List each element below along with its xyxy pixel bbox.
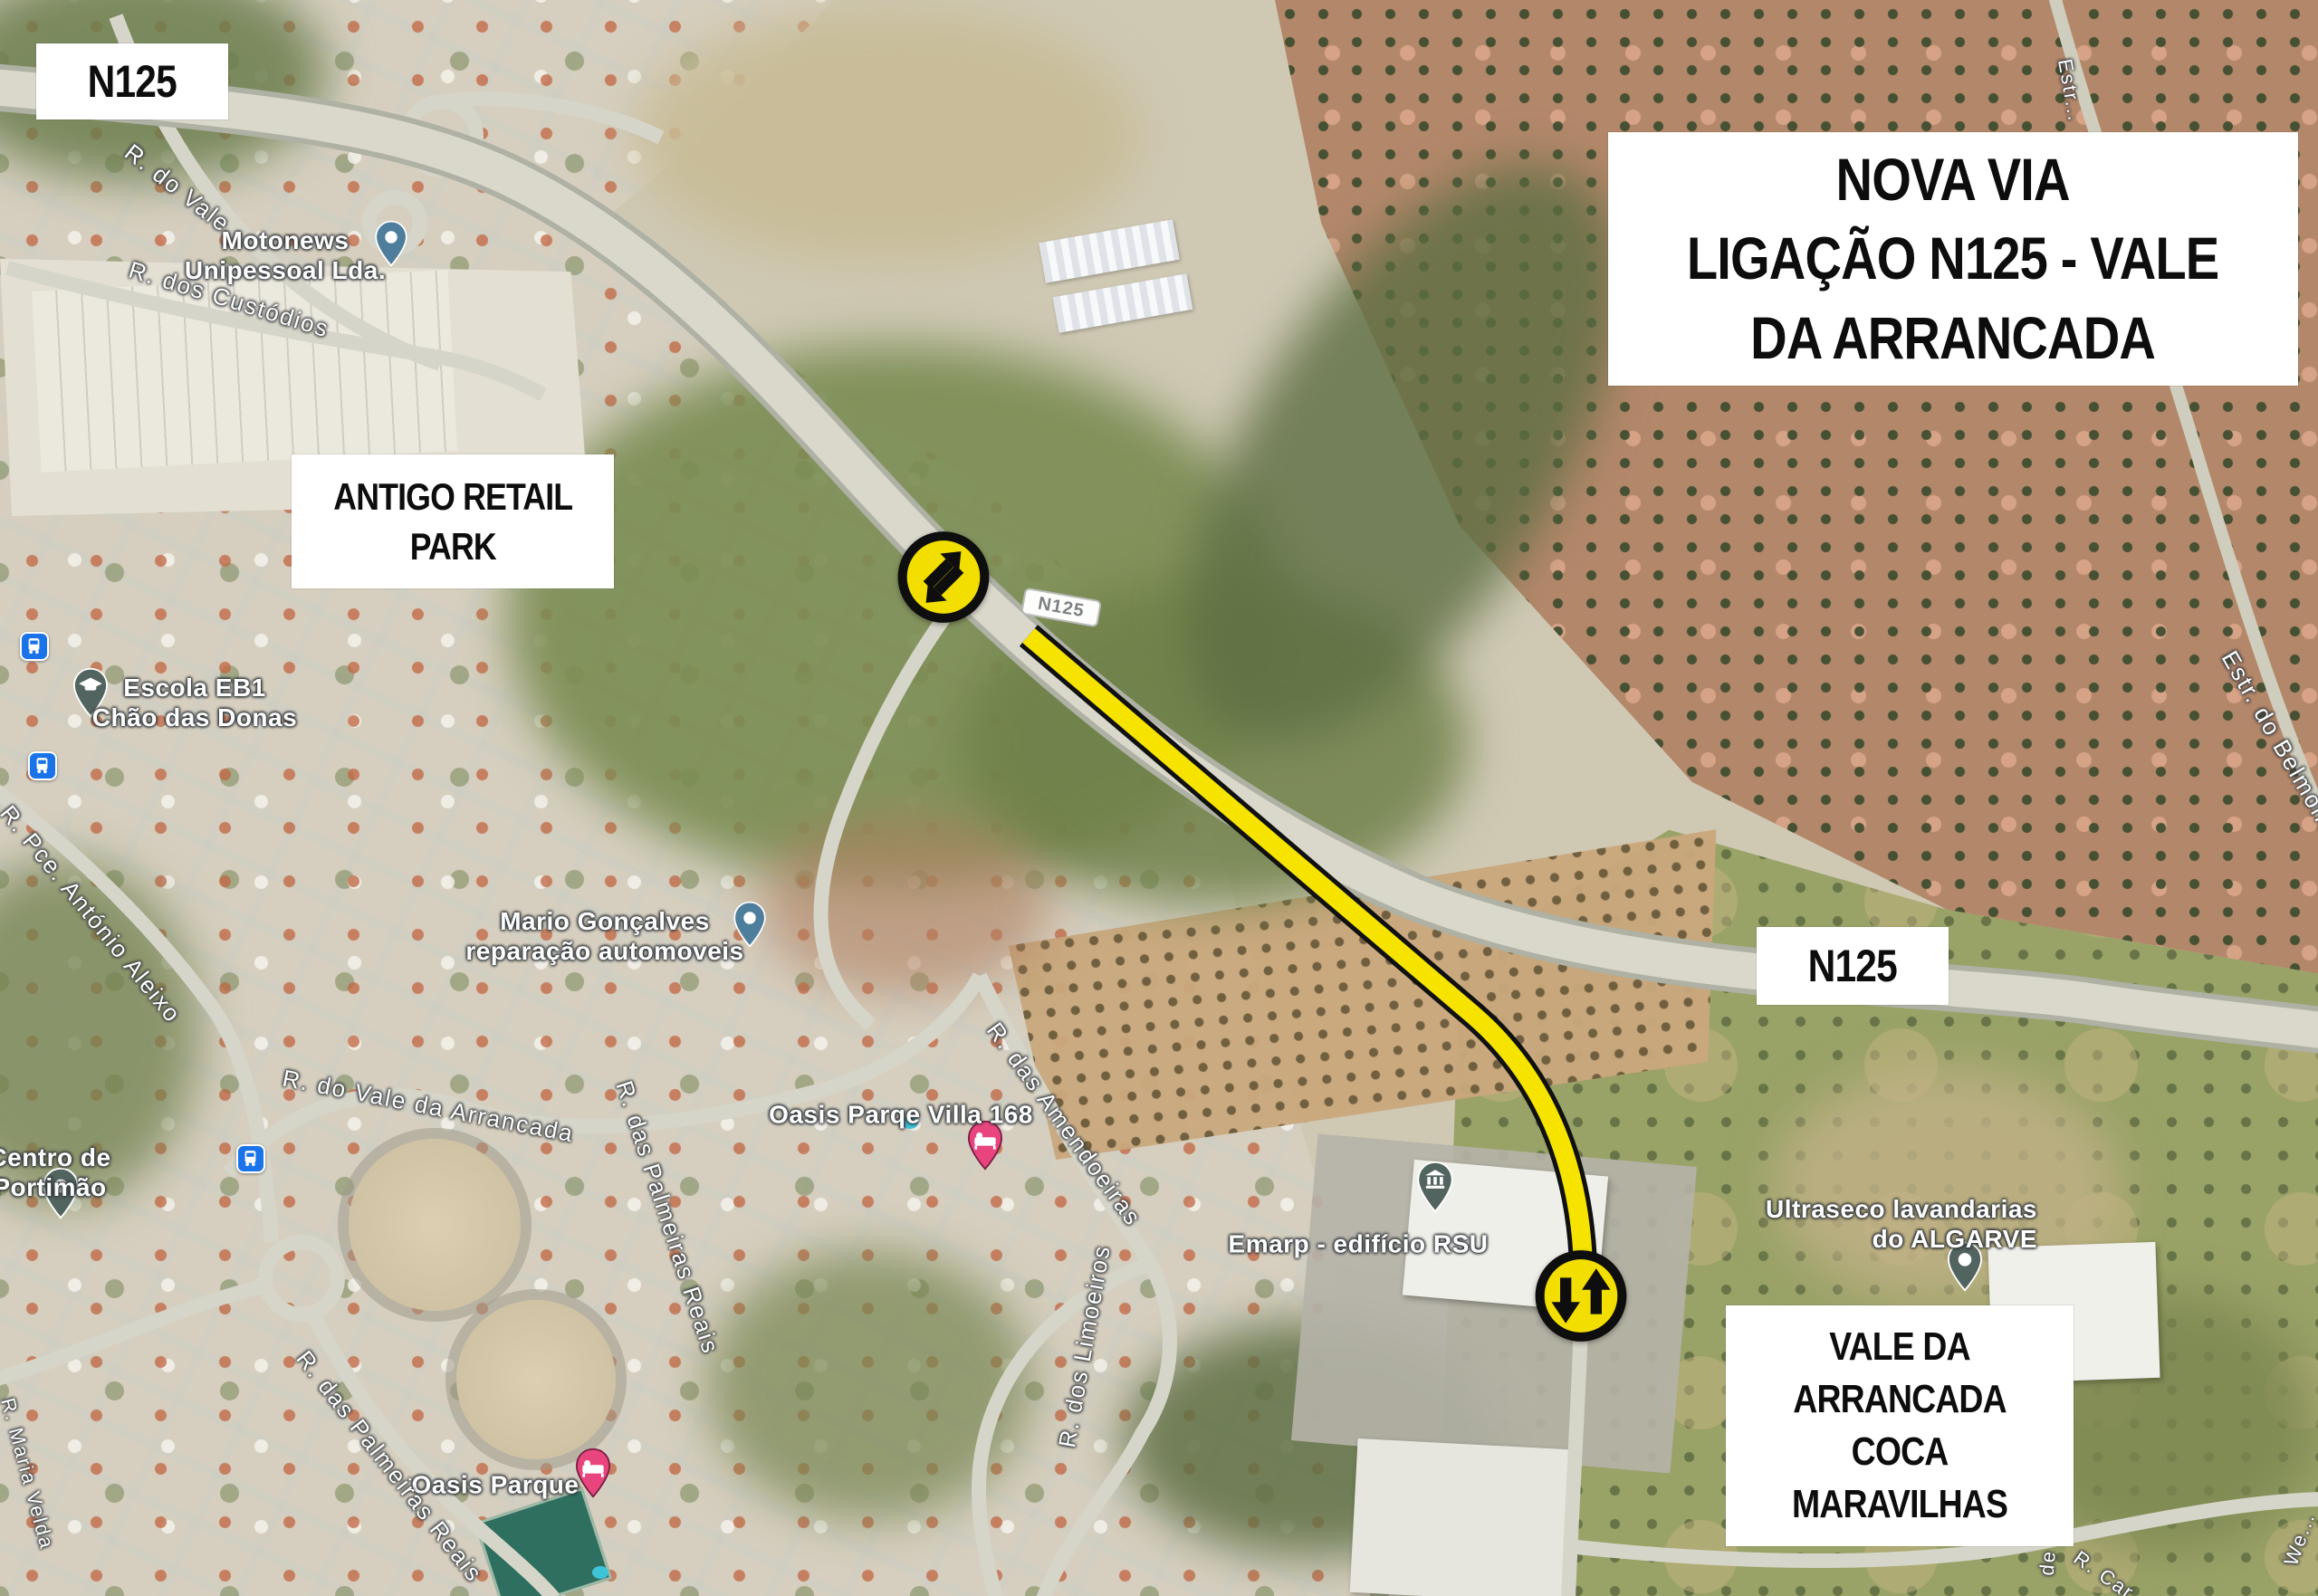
two-way-traffic-vertical-glyph xyxy=(1530,1246,1632,1347)
label-escola: Escola EB1 Chão das Donas xyxy=(92,673,297,732)
box-text: N125 xyxy=(88,52,177,111)
two-way-traffic-diagonal-glyph xyxy=(893,527,994,628)
label-text: Centro de Portimão xyxy=(0,1143,111,1201)
label-villa168: Oasis Parqe Villa 168 xyxy=(769,1099,1033,1129)
bus-stop-icon xyxy=(28,751,57,780)
lodging-pin-icon xyxy=(573,1448,613,1498)
bus-glyph xyxy=(22,634,46,658)
title-box: NOVA VIA LIGAÇÃO N125 - VALE DA ARRANCAD… xyxy=(1608,132,2298,386)
map-canvas: N125 Motonews Unipessoal Lda. Escola EB1… xyxy=(0,0,2318,1596)
public-building-pin-icon xyxy=(1414,1161,1456,1213)
label-text: Ultraseco lavandarias do ALGARVE xyxy=(1766,1195,2037,1253)
label-text: Emarp - edifício RSU xyxy=(1229,1229,1489,1257)
label-centro: Centro de Portimão xyxy=(0,1142,111,1202)
two-way-traffic-icon xyxy=(1530,1246,1632,1352)
box-text: ANTIGO RETAIL PARK xyxy=(333,472,572,572)
box-text: N125 xyxy=(1808,936,1897,996)
emarp-pin xyxy=(1414,1161,1456,1218)
n125-label-box-top: N125 xyxy=(36,43,228,119)
label-ultraseco: Ultraseco lavandarias do ALGARVE xyxy=(1766,1194,2037,1254)
bus-glyph xyxy=(238,1146,263,1171)
two-way-traffic-icon xyxy=(893,527,994,633)
vale-da-arrancada-box: VALE DA ARRANCADA COCA MARAVILHAS xyxy=(1726,1305,2074,1546)
oasis-parque-pin xyxy=(573,1448,613,1503)
road-shield-label: N125 xyxy=(1037,594,1087,622)
label-oasis: Oasis Parque xyxy=(412,1469,579,1499)
n125-label-box-mid: N125 xyxy=(1757,927,1949,1005)
label-text: Oasis Parqe Villa 168 xyxy=(769,1100,1033,1128)
label-text: Mario Gonçalves reparação automoveis xyxy=(465,907,743,965)
bus-glyph xyxy=(30,753,54,778)
bus-stop-icon xyxy=(20,632,49,661)
antigo-retail-park-box: ANTIGO RETAIL PARK xyxy=(292,454,614,588)
box-text: VALE DA ARRANCADA COCA MARAVILHAS xyxy=(1792,1321,2007,1531)
estrada-belmonte-road xyxy=(2054,0,2318,818)
label-text: Escola EB1 Chão das Donas xyxy=(92,674,297,731)
title-text: NOVA VIA LIGAÇÃO N125 - VALE DA ARRANCAD… xyxy=(1687,140,2219,377)
label-text: Oasis Parque xyxy=(412,1470,579,1498)
label-mario: Mario Gonçalves reparação automoveis xyxy=(465,906,743,966)
label-emarp: Emarp - edifício RSU xyxy=(1229,1228,1489,1258)
bus-stop-icon xyxy=(236,1144,265,1173)
